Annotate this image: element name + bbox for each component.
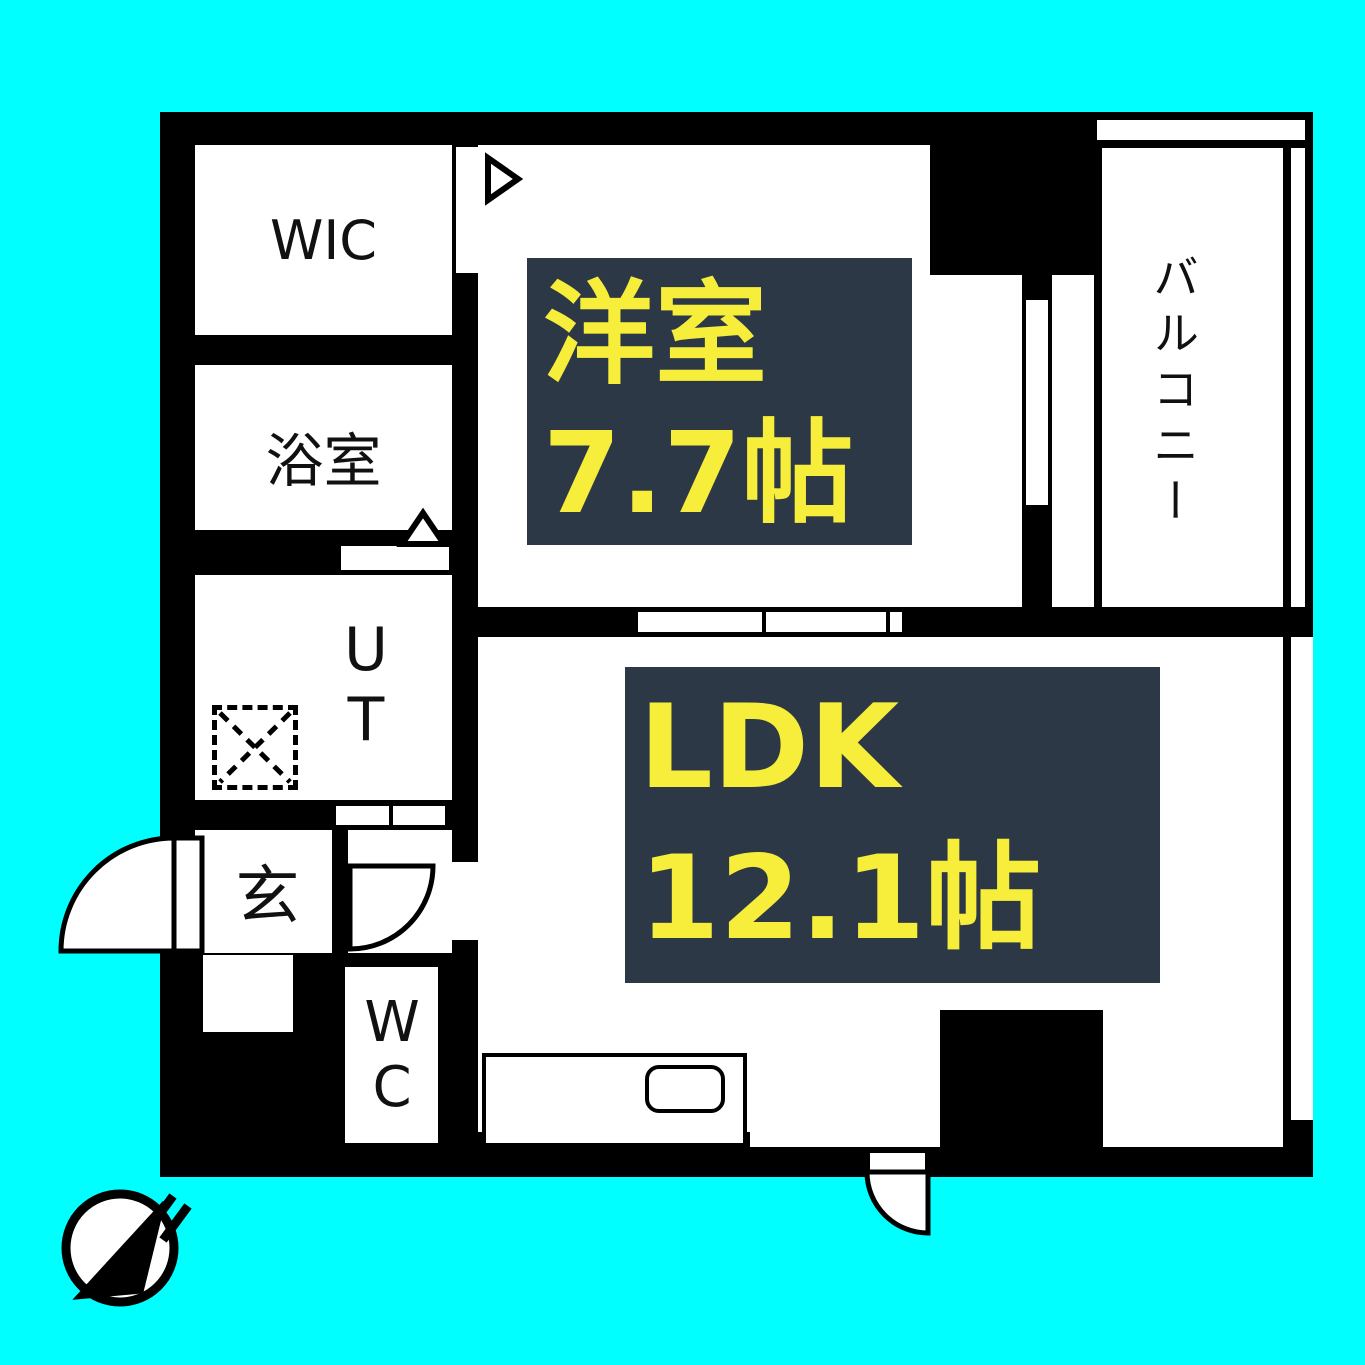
toilet-label: WC — [352, 975, 432, 1135]
floor-plan-canvas: 洋室 7.7帖 LDK 12.1帖 WIC 浴室 UT 玄 WC バルコニー — [0, 0, 1365, 1365]
utility-label: UT — [328, 592, 404, 777]
ldk-exit-door-leaf — [867, 1150, 928, 1175]
balcony-label: バルコニー — [1130, 165, 1216, 620]
wall-corner-bottom-right — [1283, 1120, 1313, 1147]
balcony-outer-top — [1097, 112, 1313, 120]
washing-machine-icon — [212, 705, 298, 790]
hall-ldk-opening — [452, 862, 478, 940]
bath-label: 浴室 — [195, 418, 452, 493]
pillar-top-right — [930, 112, 1097, 275]
compass-north-icon — [66, 1194, 188, 1302]
ut-door-divider — [389, 806, 393, 825]
kitchen-sink-icon — [645, 1065, 725, 1113]
balcony-window — [1026, 300, 1048, 505]
ut-sliding-door — [333, 803, 448, 828]
wic-door-opening — [456, 147, 478, 273]
western-room-name: 洋室 — [543, 266, 912, 405]
wall-top — [160, 112, 930, 145]
wall-entrance-right — [332, 830, 348, 953]
pillar-bottom-right — [940, 1010, 1103, 1150]
western-room-size-badge: 洋室 7.7帖 — [527, 258, 912, 545]
bath-sliding-door — [338, 543, 452, 573]
ldk-exit-door-icon — [867, 1172, 928, 1233]
western-room-size: 7.7帖 — [543, 405, 912, 544]
wic-label: WIC — [195, 205, 452, 275]
ldk-size-badge: LDK 12.1帖 — [625, 667, 1160, 983]
balcony-railing-left — [1094, 140, 1102, 607]
wall-wic-bath — [195, 335, 452, 365]
wall-right-thin — [1283, 140, 1291, 1147]
wall-bottom — [160, 1147, 1313, 1177]
balcony-railing-top — [1094, 140, 1305, 148]
ldk-size: 12.1帖 — [639, 824, 1160, 975]
ldk-name: LDK — [639, 673, 1160, 824]
entrance-step — [203, 955, 293, 1032]
sliding-door-divider-1 — [762, 612, 766, 632]
sliding-door-divider-2 — [886, 612, 890, 632]
balcony-outer-right — [1305, 112, 1313, 637]
western-ldk-sliding-door — [635, 609, 905, 635]
entrance-label: 玄 — [203, 850, 332, 932]
